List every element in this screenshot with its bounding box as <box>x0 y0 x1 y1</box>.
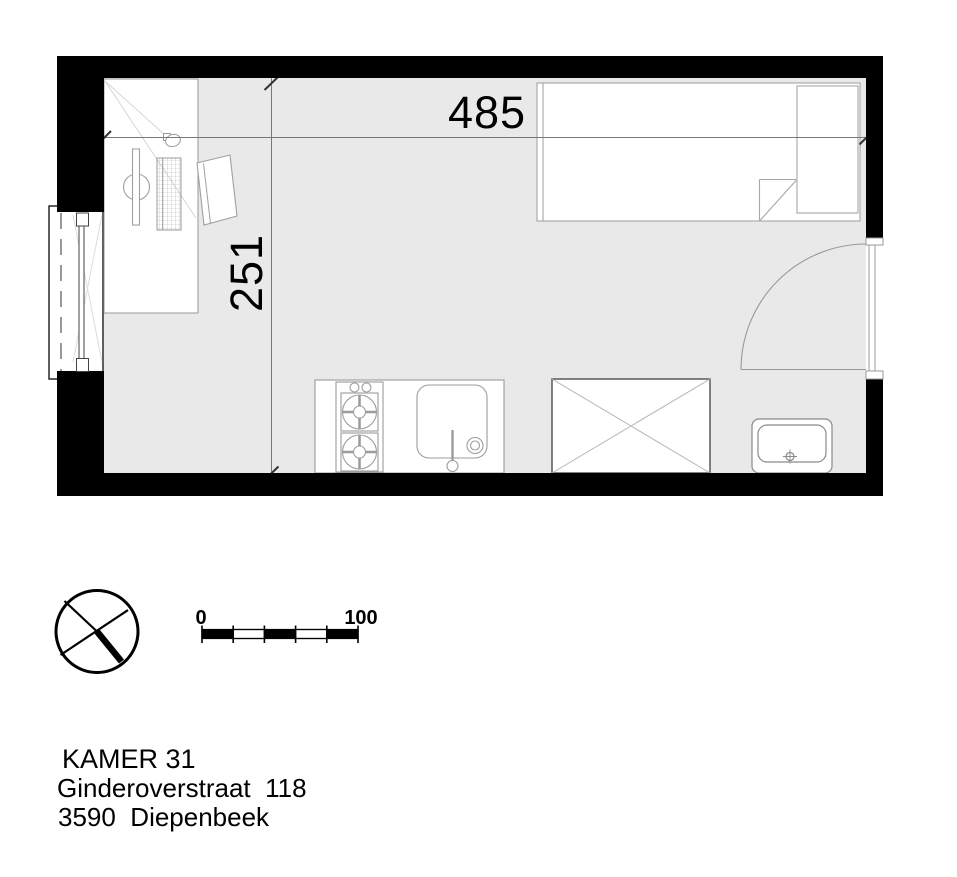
depth-dimension-label: 251 <box>221 234 272 312</box>
floorplan-drawing: 485 251 <box>0 0 957 877</box>
width-dimension-label: 485 <box>448 87 526 138</box>
street-address: Ginderoverstraat 118 <box>57 773 307 803</box>
dining-table <box>552 379 710 473</box>
wall-top <box>57 56 883 78</box>
city-address: 3590 Diepenbeek <box>58 802 270 832</box>
wall-right-upper <box>866 56 883 238</box>
door-jamb <box>866 371 883 379</box>
wall-left-upper <box>57 56 104 212</box>
stove-knob <box>350 383 359 392</box>
scale-start-label: 0 <box>195 607 206 629</box>
window-frame-block <box>77 359 89 372</box>
window-glazing <box>79 214 84 371</box>
keyboard <box>157 158 181 230</box>
single-bed <box>537 83 860 221</box>
door-jamb <box>866 238 883 245</box>
washbasin <box>752 419 832 473</box>
door-leaf <box>869 245 875 371</box>
kitchen-counter <box>315 380 504 473</box>
wall-left-lower <box>57 371 104 473</box>
title-block: KAMER 31 Ginderoverstraat 118 3590 Diepe… <box>57 744 307 832</box>
wall-bottom <box>57 473 883 496</box>
scale-end-label: 100 <box>344 607 377 629</box>
stove-two-burners <box>336 382 383 472</box>
stove-knob <box>362 383 371 392</box>
north-arrow-line <box>65 601 98 632</box>
window-frame-block <box>77 213 89 226</box>
north-arrow-line <box>61 610 129 655</box>
floorplan-sheet: 485 251 <box>0 0 957 877</box>
room-title: KAMER 31 <box>62 744 196 774</box>
office-chair <box>197 155 237 225</box>
north-arrow <box>56 591 138 673</box>
north-arrow-pointer <box>97 632 122 662</box>
scale-bar: 0 100 <box>195 607 377 643</box>
monitor <box>133 149 140 225</box>
